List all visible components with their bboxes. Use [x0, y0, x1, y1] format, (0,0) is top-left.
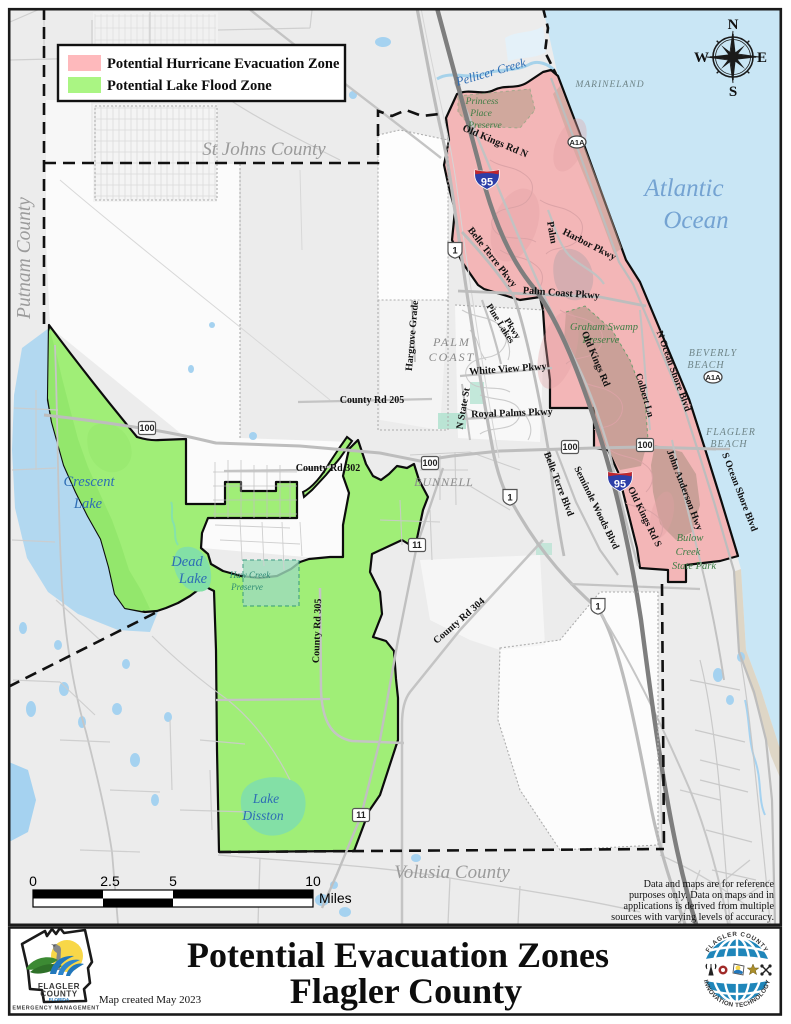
svg-text:County Rd 305: County Rd 305 [311, 599, 324, 664]
svg-text:COAST: COAST [429, 350, 476, 364]
svg-text:Graham Swamp: Graham Swamp [570, 322, 638, 333]
svg-text:Atlantic: Atlantic [642, 175, 723, 202]
svg-text:Disston: Disston [241, 808, 284, 823]
svg-text:Haw Creek: Haw Creek [229, 570, 271, 580]
svg-text:Creek: Creek [676, 547, 701, 558]
svg-text:BEVERLY: BEVERLY [689, 348, 738, 359]
svg-text:Dead: Dead [170, 554, 203, 570]
svg-text:Putnam County: Putnam County [14, 197, 35, 320]
svg-text:A1A: A1A [705, 373, 721, 382]
svg-text:0: 0 [29, 873, 37, 889]
svg-text:Lake: Lake [73, 496, 103, 512]
svg-text:100: 100 [422, 458, 437, 468]
svg-text:Potential Lake Flood Zone: Potential Lake Flood Zone [107, 78, 272, 94]
svg-text:Map created May 2023: Map created May 2023 [99, 994, 202, 1006]
svg-text:State Park: State Park [672, 561, 716, 572]
svg-text:Data and maps are for referenc: Data and maps are for reference [644, 879, 775, 890]
svg-text:County Rd 302: County Rd 302 [296, 463, 360, 474]
svg-text:100: 100 [139, 423, 154, 433]
svg-text:Crescent: Crescent [63, 474, 115, 490]
svg-text:FLORIDA: FLORIDA [49, 997, 70, 1002]
svg-text:100: 100 [637, 440, 652, 450]
svg-text:Bulow: Bulow [677, 533, 704, 544]
svg-text:MARINELAND: MARINELAND [574, 80, 644, 90]
svg-text:W: W [694, 50, 709, 66]
svg-text:E: E [757, 50, 767, 66]
svg-text:2.5: 2.5 [100, 873, 120, 889]
svg-text:1: 1 [507, 492, 513, 503]
svg-text:PALM: PALM [432, 335, 471, 349]
svg-text:Princess: Princess [465, 97, 499, 107]
svg-text:95: 95 [481, 177, 493, 189]
svg-text:N: N [728, 17, 739, 33]
svg-text:S: S [729, 84, 737, 100]
svg-text:applications is derived from m: applications is derived from multiple [623, 901, 774, 912]
svg-text:11: 11 [356, 810, 366, 820]
svg-text:BUNNELL: BUNNELL [414, 475, 474, 489]
svg-text:County Rd 205: County Rd 205 [340, 395, 404, 406]
svg-text:Ocean: Ocean [663, 207, 728, 234]
svg-text:11: 11 [412, 540, 422, 550]
svg-text:BEACH: BEACH [687, 360, 724, 371]
svg-text:Place: Place [469, 109, 492, 119]
svg-text:purposes only. Data on maps an: purposes only. Data on maps and in [629, 890, 774, 901]
svg-text:BEACH: BEACH [710, 439, 747, 450]
svg-text:Lake: Lake [178, 571, 208, 587]
svg-text:Potential Hurricane Evacuation: Potential Hurricane Evacuation Zone [107, 56, 340, 72]
svg-text:1: 1 [595, 601, 601, 612]
svg-text:EMERGENCY MANAGEMENT: EMERGENCY MANAGEMENT [12, 1006, 99, 1012]
svg-text:100: 100 [562, 442, 577, 452]
svg-text:Miles: Miles [319, 890, 352, 906]
svg-text:10: 10 [305, 873, 321, 889]
svg-text:A1A: A1A [569, 138, 585, 147]
svg-text:Potential Evacuation Zones: Potential Evacuation Zones [187, 935, 609, 975]
svg-text:Preserve: Preserve [230, 582, 263, 592]
svg-text:sources with varying levels of: sources with varying levels of accuracy. [611, 912, 774, 923]
svg-text:95: 95 [614, 479, 626, 491]
svg-text:1: 1 [452, 245, 458, 256]
svg-text:Flagler County: Flagler County [290, 971, 522, 1011]
svg-text:FLAGLER: FLAGLER [705, 427, 756, 438]
svg-text:Lake: Lake [252, 791, 279, 806]
svg-text:Volusia County: Volusia County [394, 862, 510, 883]
svg-text:St Johns County: St Johns County [202, 139, 326, 160]
svg-text:5: 5 [169, 873, 177, 889]
